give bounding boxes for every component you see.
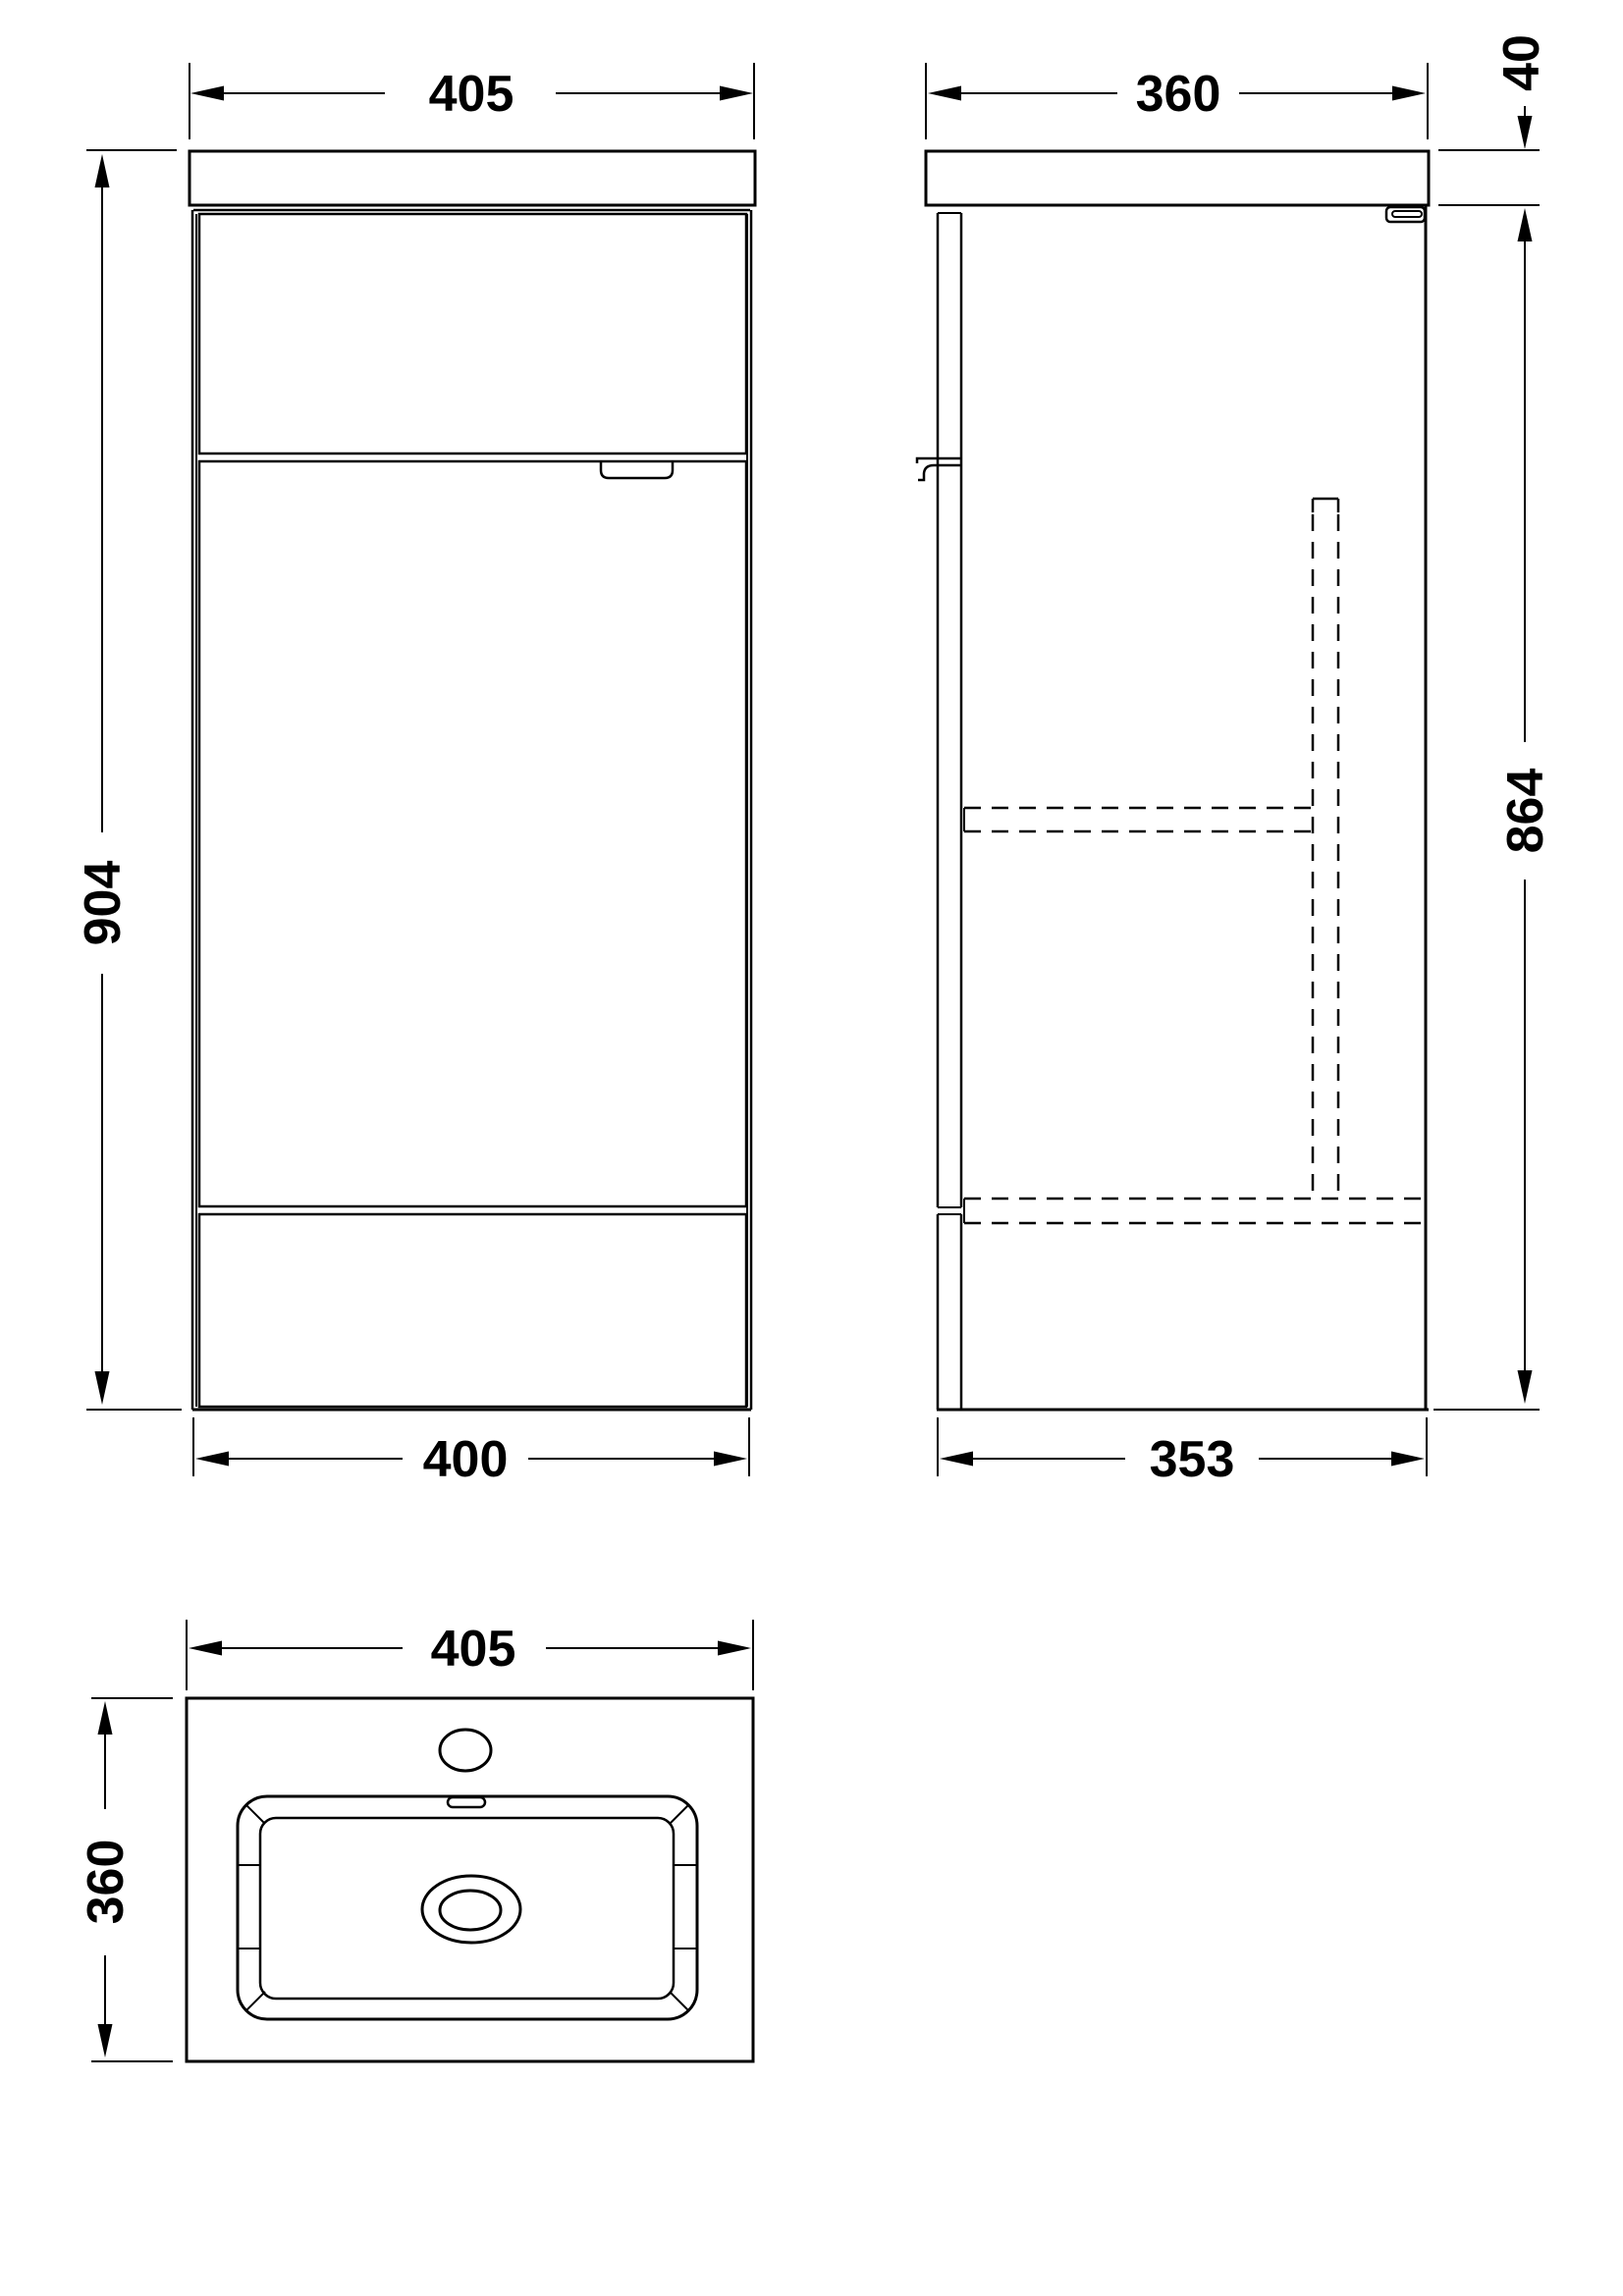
arrow-up-icon: [95, 154, 110, 187]
front-drawer: [199, 214, 746, 454]
dimension-value: 400: [423, 1431, 509, 1488]
side-depth-dimension: 360: [926, 63, 1428, 139]
vanity-unit-dimension-drawing: 405 904: [0, 0, 1623, 2296]
arrow-right-icon: [718, 1641, 751, 1656]
worktop-thickness-dimension: 40: [1438, 34, 1550, 205]
arrow-up-icon: [1518, 208, 1533, 241]
dimension-value: 360: [1136, 66, 1221, 123]
arrow-left-icon: [195, 1452, 229, 1467]
plan-width-dimension: 405: [187, 1620, 753, 1690]
arrow-left-icon: [928, 86, 961, 101]
dimension-value: 864: [1497, 769, 1554, 854]
front-worktop: [189, 151, 755, 205]
dimension-value: 40: [1493, 34, 1550, 91]
waste-pipe-stubs: [1313, 499, 1338, 512]
side-handle-hook-top: [917, 458, 961, 463]
tap-hole: [440, 1730, 491, 1771]
arrow-right-icon: [1392, 86, 1426, 101]
dimension-value: 904: [75, 861, 132, 946]
arrow-down-icon: [1518, 116, 1533, 149]
arrow-down-icon: [98, 2024, 113, 2057]
basin-bowl-inner-rim: [260, 1818, 674, 1999]
dimension-value: 405: [429, 66, 514, 123]
front-width-dimension: 405: [189, 63, 754, 139]
arrow-left-icon: [190, 86, 224, 101]
side-worktop: [926, 151, 1429, 205]
drain-outer: [422, 1876, 520, 1943]
side-handle-hook: [918, 465, 961, 480]
technical-drawing-page: 405 904: [0, 0, 1623, 2296]
front-door: [199, 461, 746, 1206]
overflow-slot: [448, 1797, 485, 1807]
arrow-down-icon: [1518, 1370, 1533, 1404]
bowl-rim-ticks: [238, 1865, 697, 1949]
arrow-right-icon: [720, 86, 753, 101]
arrow-down-icon: [95, 1371, 110, 1405]
front-elevation-view: 405 904: [75, 63, 755, 1488]
front-plinth: [199, 1214, 746, 1407]
door-handle-recess: [601, 461, 673, 478]
drain-inner: [440, 1891, 501, 1930]
basin-plan-view: 405 360: [78, 1620, 753, 2061]
arrow-right-icon: [1391, 1452, 1425, 1467]
dimension-value: 353: [1150, 1431, 1235, 1488]
dimension-value: 360: [78, 1840, 135, 1925]
arrow-up-icon: [98, 1701, 113, 1735]
worktop-fixing-clip-slot: [1392, 211, 1422, 217]
arrow-right-icon: [714, 1452, 747, 1467]
cabinet-height-dimension: 864: [1434, 208, 1554, 1410]
arrow-left-icon: [189, 1641, 222, 1656]
arrow-left-icon: [940, 1452, 973, 1467]
side-base-depth-dimension: 353: [938, 1417, 1427, 1488]
dimension-value: 405: [431, 1621, 516, 1678]
side-elevation-view: 360: [917, 34, 1554, 1488]
plan-worktop-outline: [187, 1698, 753, 2061]
front-height-dimension: 904: [75, 150, 182, 1410]
front-base-width-dimension: 400: [193, 1417, 749, 1488]
plan-depth-dimension: 360: [78, 1698, 173, 2061]
basin-bowl-outer-rim: [238, 1796, 697, 2019]
bowl-corner-facets: [246, 1805, 688, 2010]
